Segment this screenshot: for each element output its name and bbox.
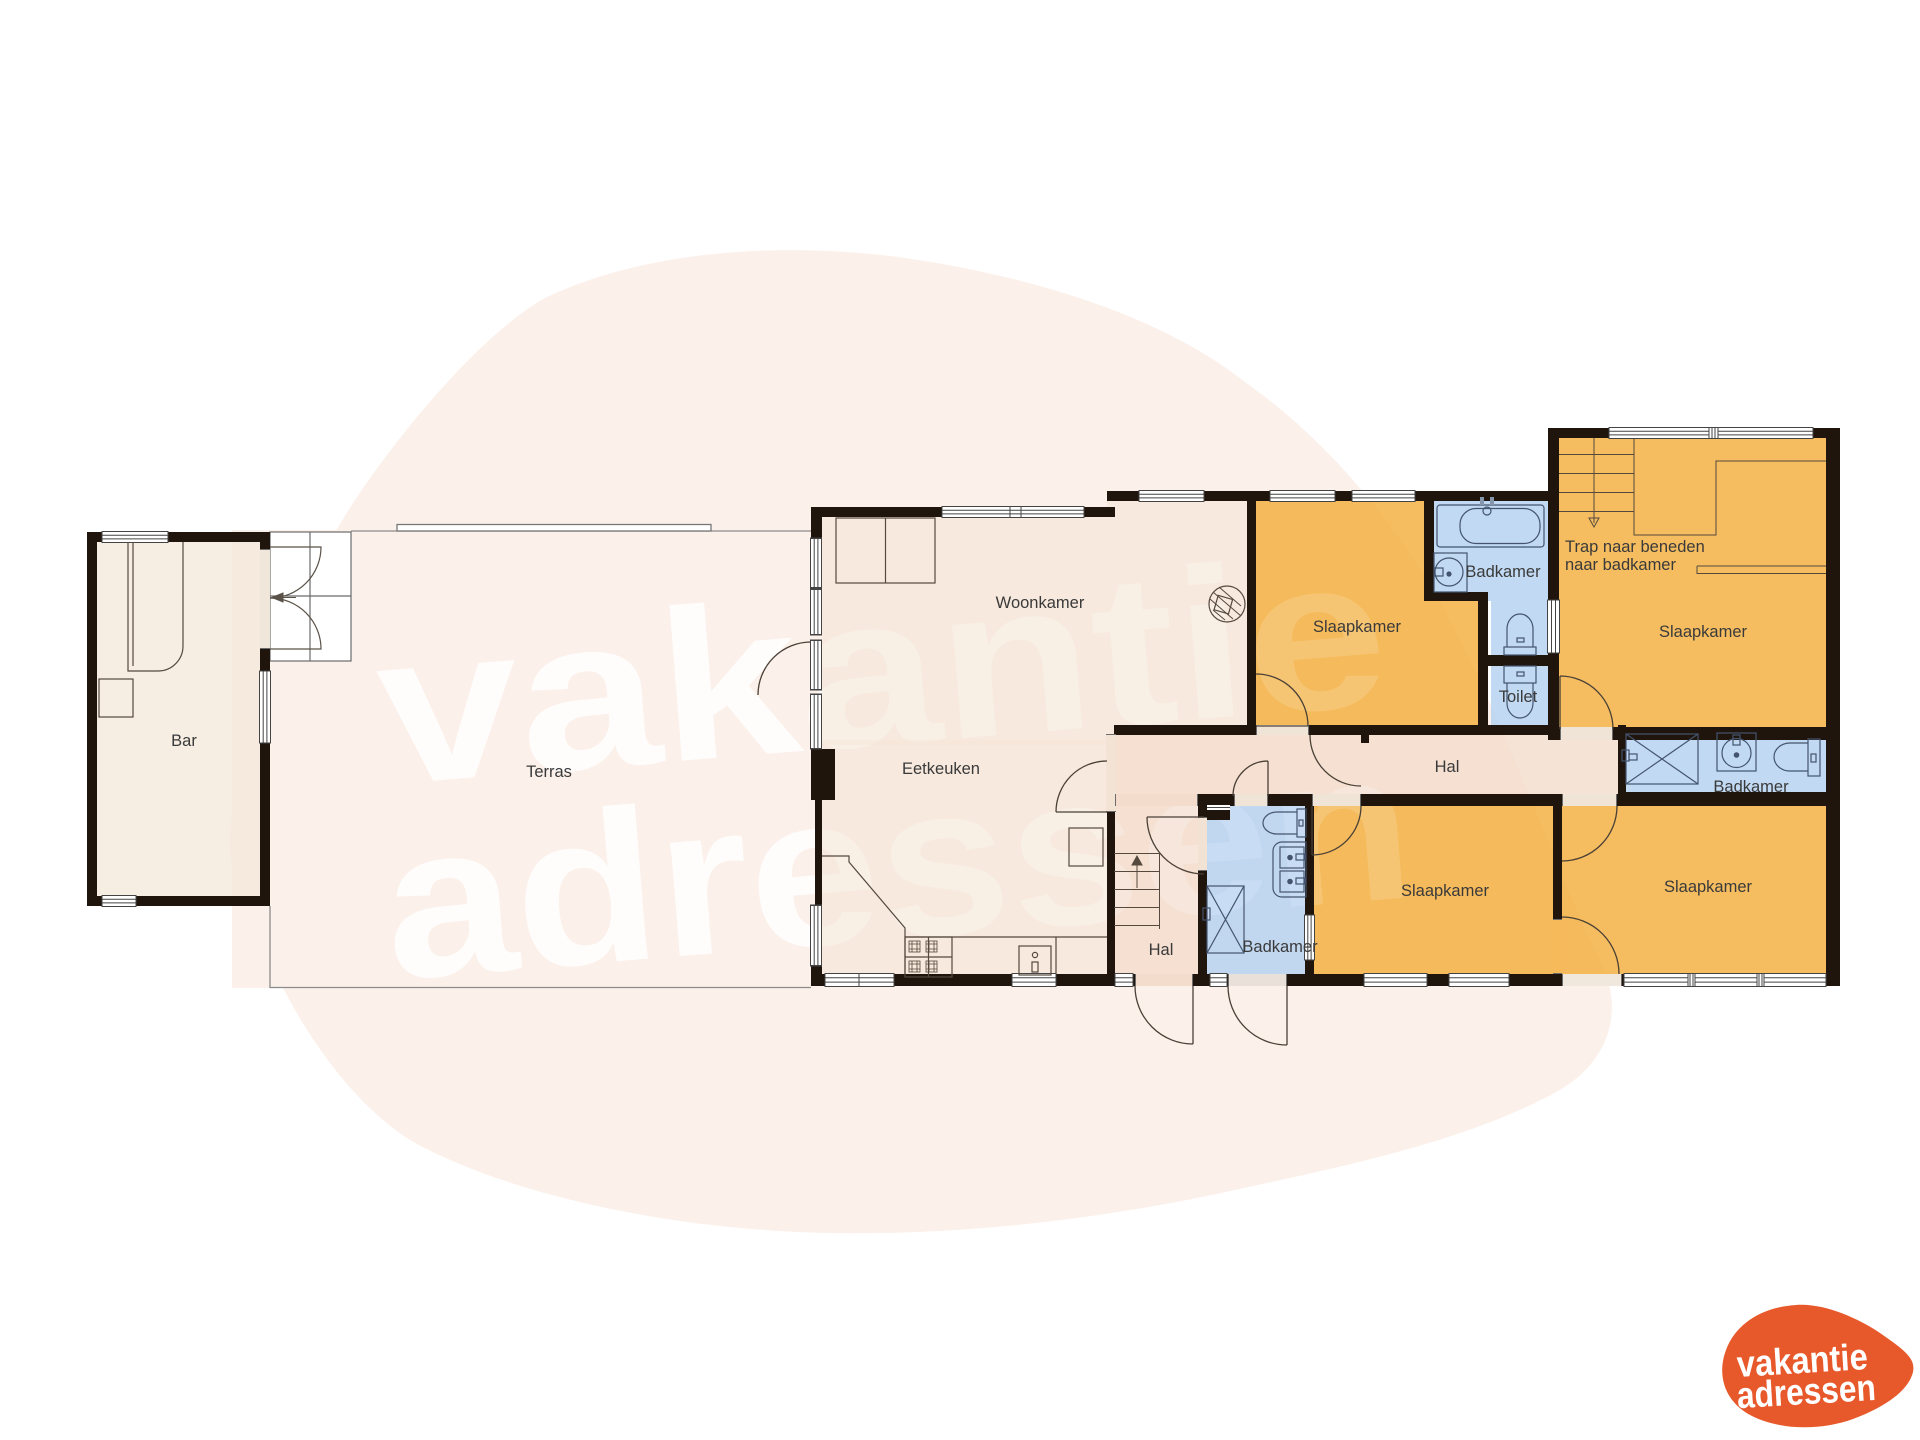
svg-text:Slaapkamer: Slaapkamer: [1664, 878, 1753, 896]
svg-text:Hal: Hal: [1435, 758, 1460, 776]
svg-text:Slaapkamer: Slaapkamer: [1659, 623, 1748, 641]
svg-text:adressen: adressen: [1736, 1367, 1877, 1416]
svg-text:Badkamer: Badkamer: [1242, 938, 1318, 956]
svg-text:Slaapkamer: Slaapkamer: [1401, 882, 1490, 900]
svg-text:Terras: Terras: [526, 763, 572, 781]
svg-text:Bar: Bar: [171, 732, 197, 750]
svg-text:Toilet: Toilet: [1499, 688, 1538, 706]
svg-text:Hal: Hal: [1149, 941, 1174, 959]
svg-text:naar badkamer: naar badkamer: [1565, 556, 1676, 574]
svg-text:Slaapkamer: Slaapkamer: [1313, 618, 1402, 636]
svg-text:Trap naar beneden: Trap naar beneden: [1565, 538, 1705, 556]
svg-text:Eetkeuken: Eetkeuken: [902, 760, 980, 778]
svg-text:Badkamer: Badkamer: [1713, 778, 1789, 796]
svg-text:Badkamer: Badkamer: [1465, 563, 1541, 581]
svg-text:Woonkamer: Woonkamer: [996, 594, 1085, 612]
